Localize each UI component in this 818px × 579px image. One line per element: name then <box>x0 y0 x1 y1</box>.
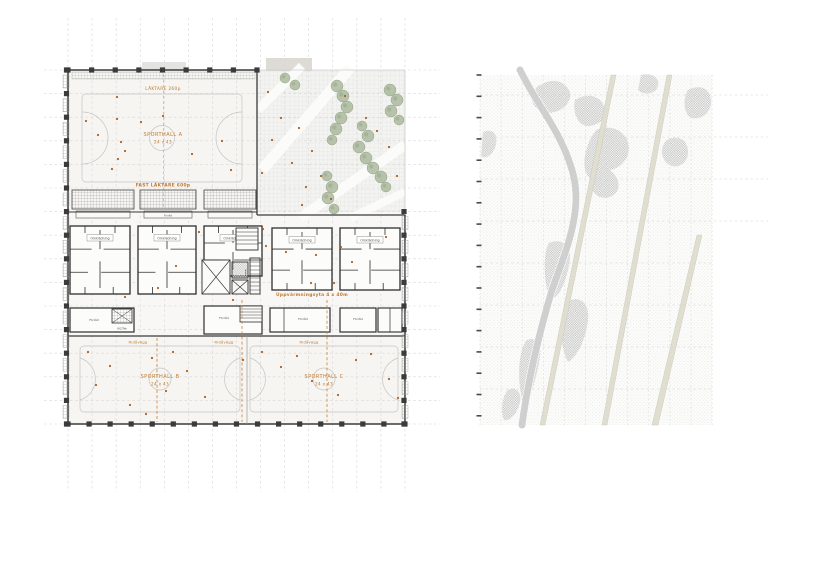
tree-crown-detail <box>362 154 366 158</box>
edge-tick <box>477 351 482 353</box>
tree <box>327 135 337 145</box>
column <box>401 398 406 403</box>
column <box>234 421 239 426</box>
column <box>297 421 302 426</box>
tree-crown-detail <box>343 103 347 107</box>
edge-tick <box>477 223 482 225</box>
facade-segment <box>63 75 69 88</box>
column <box>401 374 406 379</box>
scatter-dot <box>298 127 300 129</box>
facade-segment <box>63 122 69 135</box>
storage-block: Förråd <box>270 308 330 332</box>
column <box>381 421 386 426</box>
column <box>401 233 406 238</box>
scatter-dot <box>116 96 118 98</box>
tree-crown-detail <box>332 125 336 129</box>
scatter-dot <box>397 397 399 399</box>
storage-blocks: FörrådFörrådFörrådFörrådWC/Tek <box>70 306 402 334</box>
column <box>401 209 406 214</box>
column <box>401 256 406 261</box>
facade-segment <box>63 335 69 348</box>
column <box>318 421 323 426</box>
column <box>339 421 344 426</box>
tree <box>326 181 338 193</box>
edge-tick <box>477 394 482 396</box>
scatter-dot <box>230 169 232 171</box>
column <box>64 303 69 308</box>
column <box>255 421 260 426</box>
label-warmup-area: Uppvärmningsyta 4 x 40m <box>276 292 348 298</box>
scatter-dot <box>330 198 332 200</box>
scatter-dot <box>87 351 89 353</box>
curtain-label: Ridåvägg <box>215 340 234 345</box>
tree <box>375 171 387 183</box>
tree <box>360 152 372 164</box>
tree-crown-detail <box>359 123 363 127</box>
locker-block: Omklädning <box>138 226 196 294</box>
stair-block <box>236 228 258 250</box>
column <box>213 421 218 426</box>
edge-tick <box>477 372 482 374</box>
facade-segment <box>402 335 408 348</box>
column <box>401 351 406 356</box>
scatter-dot <box>365 117 367 119</box>
facade-segment <box>402 358 408 371</box>
stair-block <box>240 306 262 322</box>
scatter-dot <box>388 146 390 148</box>
column <box>360 421 365 426</box>
facade-segment <box>63 146 69 159</box>
scatter-dot <box>186 370 188 372</box>
facade-segment <box>63 264 69 277</box>
scatter-dot <box>262 228 264 230</box>
facade-segment <box>63 193 69 206</box>
scatter-dot <box>271 139 273 141</box>
site-texture <box>480 75 712 425</box>
scatter-dot <box>124 296 126 298</box>
facade-segment <box>402 382 408 395</box>
edge-tick <box>477 74 482 76</box>
column <box>64 327 69 332</box>
column <box>64 115 69 120</box>
curtain-label: Ridåvägg <box>300 340 319 345</box>
scatter-dot <box>109 365 111 367</box>
fixed-stand <box>204 190 256 209</box>
column <box>64 162 69 167</box>
elevator-shaft <box>232 262 248 278</box>
scatter-dot <box>242 359 244 361</box>
scatter-dot <box>351 261 353 263</box>
facade-segment <box>402 264 408 277</box>
column <box>401 303 406 308</box>
column <box>207 67 212 72</box>
scatter-dot <box>124 150 126 152</box>
fixed-stand <box>140 190 196 209</box>
tree <box>357 121 367 131</box>
tree-crown-detail <box>386 86 390 90</box>
scatter-dot <box>232 299 234 301</box>
label-fixed-stand: FAST LÄKTARE 600p <box>136 182 191 189</box>
scatter-dot <box>85 120 87 122</box>
site-plan-panel <box>477 70 769 425</box>
tree-crown-detail <box>355 143 359 147</box>
column <box>64 421 69 426</box>
scatter-dot <box>117 158 119 160</box>
facade-segment <box>63 405 69 418</box>
tree-crown-detail <box>282 75 286 79</box>
column <box>64 280 69 285</box>
column <box>401 421 406 426</box>
edge-tick <box>477 245 482 247</box>
facade-segment <box>402 217 408 230</box>
column <box>136 67 141 72</box>
tree <box>330 123 342 135</box>
facade-segment <box>402 311 408 324</box>
scatter-dot <box>129 404 131 406</box>
edge-tick <box>477 138 482 140</box>
scatter-dot <box>344 95 346 97</box>
scatter-dot <box>116 118 118 120</box>
scatter-dot <box>333 282 335 284</box>
tree <box>322 171 332 181</box>
scatter-dot <box>340 246 342 248</box>
label-top-stand: LÄKTARE 260p <box>145 85 180 92</box>
scatter-dot <box>140 121 142 123</box>
tree <box>290 80 300 90</box>
scatter-dot <box>320 175 322 177</box>
column <box>192 421 197 426</box>
tree <box>280 73 290 83</box>
hall-bc-floor <box>68 336 405 424</box>
scatter-dot <box>97 134 99 136</box>
scatter-dot <box>376 130 378 132</box>
tree <box>337 90 349 102</box>
tree <box>353 141 365 153</box>
scatter-dot <box>311 380 313 382</box>
tree-crown-detail <box>339 92 343 96</box>
column <box>108 421 113 426</box>
floor-plan-and-site-plan: Förråd OmklädningOmklädningOmklädningOmk… <box>0 0 818 579</box>
tree <box>384 84 396 96</box>
scatter-dot <box>120 141 122 143</box>
column <box>65 67 70 72</box>
tree-crown-detail <box>377 173 381 177</box>
facade-segment <box>63 217 69 230</box>
scatter-dot <box>145 413 147 415</box>
label-hall-a-dims: 24 x 43 <box>154 140 172 145</box>
column <box>89 67 94 72</box>
scatter-dot <box>165 390 167 392</box>
storage-label: Förråd <box>353 316 363 321</box>
storage-label: Förråd <box>89 317 99 322</box>
label-hall-c: SPORTHALL C <box>304 374 343 380</box>
facade-segment <box>63 358 69 371</box>
facade-segment <box>63 169 69 182</box>
locker-room-label: Omklädning <box>360 238 379 242</box>
locker-block: Omklädning <box>70 226 130 294</box>
scatter-dot <box>315 254 317 256</box>
facade-segment <box>402 240 408 253</box>
tree-crown-detail <box>331 206 335 210</box>
label-hall-a: SPORTHALL A <box>143 132 182 138</box>
column <box>64 351 69 356</box>
label-hall-c-dims: 24 x 43 <box>315 382 333 387</box>
column <box>64 138 69 143</box>
scatter-dot <box>396 175 398 177</box>
column <box>113 67 118 72</box>
scatter-dot <box>280 366 282 368</box>
column <box>184 67 189 72</box>
column <box>231 67 236 72</box>
tree-crown-detail <box>292 82 296 86</box>
scatter-dot <box>337 394 339 396</box>
scatter-dot <box>261 172 263 174</box>
fixed-stand <box>72 190 134 209</box>
facade-segment <box>402 287 408 300</box>
edge-tick <box>477 330 482 332</box>
column <box>150 421 155 426</box>
scatter-dot <box>301 204 303 206</box>
scatter-dot <box>172 351 174 353</box>
locker-block: Omklädning <box>272 228 332 290</box>
wc-tek-label: WC/Tek <box>117 327 127 331</box>
tree-crown-detail <box>333 82 337 86</box>
column <box>64 256 69 261</box>
architectural-drawing-sheet: Förråd OmklädningOmklädningOmklädningOmk… <box>0 0 818 579</box>
tree-crown-detail <box>328 183 332 187</box>
column <box>276 421 281 426</box>
tree <box>322 192 334 204</box>
storage-label: Förråd <box>219 315 229 320</box>
column <box>160 67 165 72</box>
edge-tick <box>477 117 482 119</box>
column <box>64 91 69 96</box>
facade-segment <box>63 240 69 253</box>
scatter-dot <box>151 357 153 359</box>
edge-tick <box>477 266 482 268</box>
scatter-dot <box>310 282 312 284</box>
scatter-dot <box>267 91 269 93</box>
tree <box>335 112 347 124</box>
scatter-dot <box>291 162 293 164</box>
column <box>129 421 134 426</box>
facade-segment <box>402 405 408 418</box>
facade-segment <box>63 382 69 395</box>
scatter-dot <box>95 384 97 386</box>
edge-tick <box>477 309 482 311</box>
tree-crown-detail <box>383 184 387 188</box>
edge-tick <box>477 415 482 417</box>
locker-room-label: Omklädning <box>292 238 311 242</box>
scatter-dot <box>261 351 263 353</box>
scatter-dot <box>175 265 177 267</box>
column <box>64 398 69 403</box>
column <box>64 374 69 379</box>
label-hall-b-dims: 24 x 43 <box>151 382 169 387</box>
label-hall-b: SPORTHALL B <box>140 374 179 380</box>
scatter-dot <box>162 115 164 117</box>
edge-tick <box>477 96 482 98</box>
scatter-dot <box>311 150 313 152</box>
column <box>64 209 69 214</box>
tree-crown-detail <box>396 117 400 121</box>
edge-tick <box>477 159 482 161</box>
scatter-dot <box>191 153 193 155</box>
scatter-dot <box>198 231 200 233</box>
tree-crown-detail <box>324 173 328 177</box>
tree-crown-detail <box>337 114 341 118</box>
scatter-dot <box>296 355 298 357</box>
edge-tick <box>477 181 482 183</box>
locker-room-label: Omklädning <box>157 236 176 240</box>
scatter-dot <box>285 251 287 253</box>
roof-element <box>266 58 312 71</box>
tree-crown-detail <box>324 194 328 198</box>
facade-segment <box>63 287 69 300</box>
scatter-dot <box>355 359 357 361</box>
scatter-dot <box>111 168 113 170</box>
tree-crown-detail <box>387 107 391 111</box>
tree-crown-detail <box>329 137 333 141</box>
curtain-label: Ridåvägg <box>129 340 148 345</box>
tree <box>394 115 404 125</box>
column <box>86 421 91 426</box>
column <box>64 233 69 238</box>
scatter-dot <box>385 236 387 238</box>
scatter-dot <box>388 378 390 380</box>
edge-tick <box>477 202 482 204</box>
tree <box>362 130 374 142</box>
tree <box>385 105 397 117</box>
tree <box>341 101 353 113</box>
column <box>171 421 176 426</box>
tree <box>391 94 403 106</box>
column <box>64 185 69 190</box>
tree <box>329 204 339 214</box>
column <box>401 280 406 285</box>
column <box>401 327 406 332</box>
locker-room-label: Omklädning <box>90 236 109 240</box>
scatter-dot <box>370 353 372 355</box>
storage-label: Förråd <box>298 316 308 321</box>
scatter-dot <box>157 287 159 289</box>
scatter-dot <box>265 245 267 247</box>
tree-crown-detail <box>393 96 397 100</box>
scatter-dot <box>280 117 282 119</box>
edge-tick <box>477 287 482 289</box>
facade-segment <box>63 311 69 324</box>
scatter-dot <box>221 140 223 142</box>
column <box>254 67 259 72</box>
scatter-dot <box>305 186 307 188</box>
facade-segment <box>63 99 69 112</box>
scatter-dot <box>204 396 206 398</box>
tree-crown-detail <box>369 164 373 168</box>
locker-block: Omklädning <box>340 228 400 290</box>
storage-block: Förråd <box>340 308 376 332</box>
tree-crown-detail <box>364 132 368 136</box>
tree <box>381 182 391 192</box>
